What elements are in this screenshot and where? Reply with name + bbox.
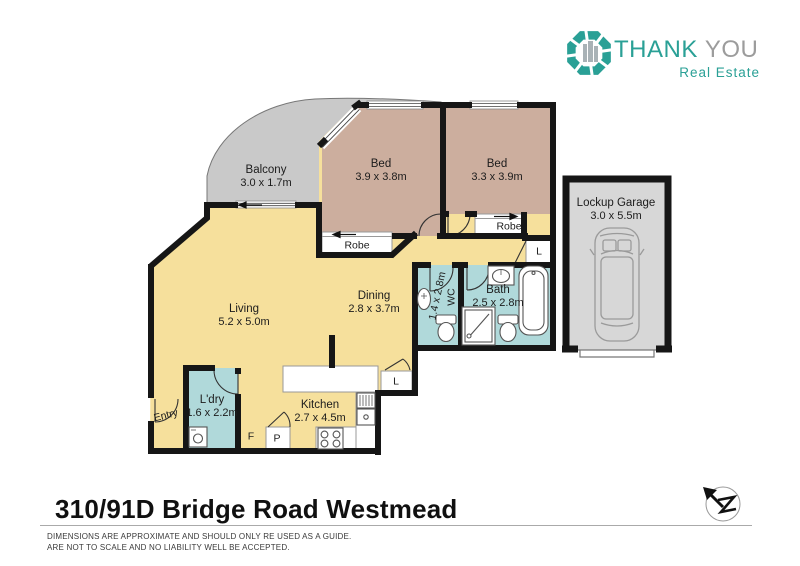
cooktop-icon <box>318 428 343 449</box>
brand-wordmark: THANKYOU <box>614 36 760 64</box>
room-label-bed2: Bed3.3 x 3.9m <box>471 158 522 184</box>
bath-sink-icon <box>488 266 514 285</box>
north-compass-icon <box>703 487 740 521</box>
pantry-label: P <box>273 433 280 446</box>
linen-kitchen-label: L <box>393 376 399 389</box>
oven-icon <box>357 409 375 425</box>
fridge-label: F <box>248 431 254 444</box>
room-label-living: Living5.2 x 5.0m <box>218 303 269 329</box>
room-label-garage: Lockup Garage3.0 x 5.5m <box>577 197 656 223</box>
room-label-kitchen: Kitchen2.7 x 4.5m <box>294 399 345 425</box>
brand-word-you: YOU <box>705 36 759 63</box>
brand-word-thank: THANK <box>614 36 698 63</box>
shower-icon <box>462 307 495 345</box>
room-label-laundry: L'dry1.6 x 2.2m <box>186 394 237 420</box>
room-label-wc: WC <box>446 288 459 306</box>
room-label-dining: Dining2.8 x 3.7m <box>348 290 399 316</box>
disclaimer-line2: ARE NOT TO SCALE AND NO LIABILITY WELL B… <box>47 543 351 554</box>
disclaimer-line1: DIMENSIONS ARE APPROXIMATE AND SHOULD ON… <box>47 532 351 543</box>
washing-machine-icon <box>189 427 207 447</box>
kitchen-sink-icon <box>357 393 375 408</box>
room-label-bed1: Bed3.9 x 3.8m <box>355 158 406 184</box>
brand-logo: THANKYOU Real Estate <box>614 36 760 80</box>
brand-pinwheel-icon <box>563 27 614 78</box>
room-label-balcony: Balcony3.0 x 1.7m <box>240 164 291 190</box>
robe2-label: Robe <box>496 221 521 234</box>
floor-plan-graphic <box>0 0 800 566</box>
linen-hall-label: L <box>536 246 542 259</box>
disclaimer-text: DIMENSIONS ARE APPROXIMATE AND SHOULD ON… <box>47 532 351 553</box>
robe1-label: Robe <box>344 240 369 253</box>
room-label-bath: Bath2.5 x 2.8m <box>472 284 523 310</box>
bath-toilet-icon <box>498 315 518 342</box>
brand-tagline: Real Estate <box>614 65 760 80</box>
property-address: 310/91D Bridge Road Westmead <box>55 494 457 525</box>
floor-plan-page: Balcony3.0 x 1.7m Bed3.9 x 3.8m Bed3.3 x… <box>0 0 800 566</box>
kitchen-counter-top <box>283 366 378 392</box>
title-divider <box>40 525 752 526</box>
